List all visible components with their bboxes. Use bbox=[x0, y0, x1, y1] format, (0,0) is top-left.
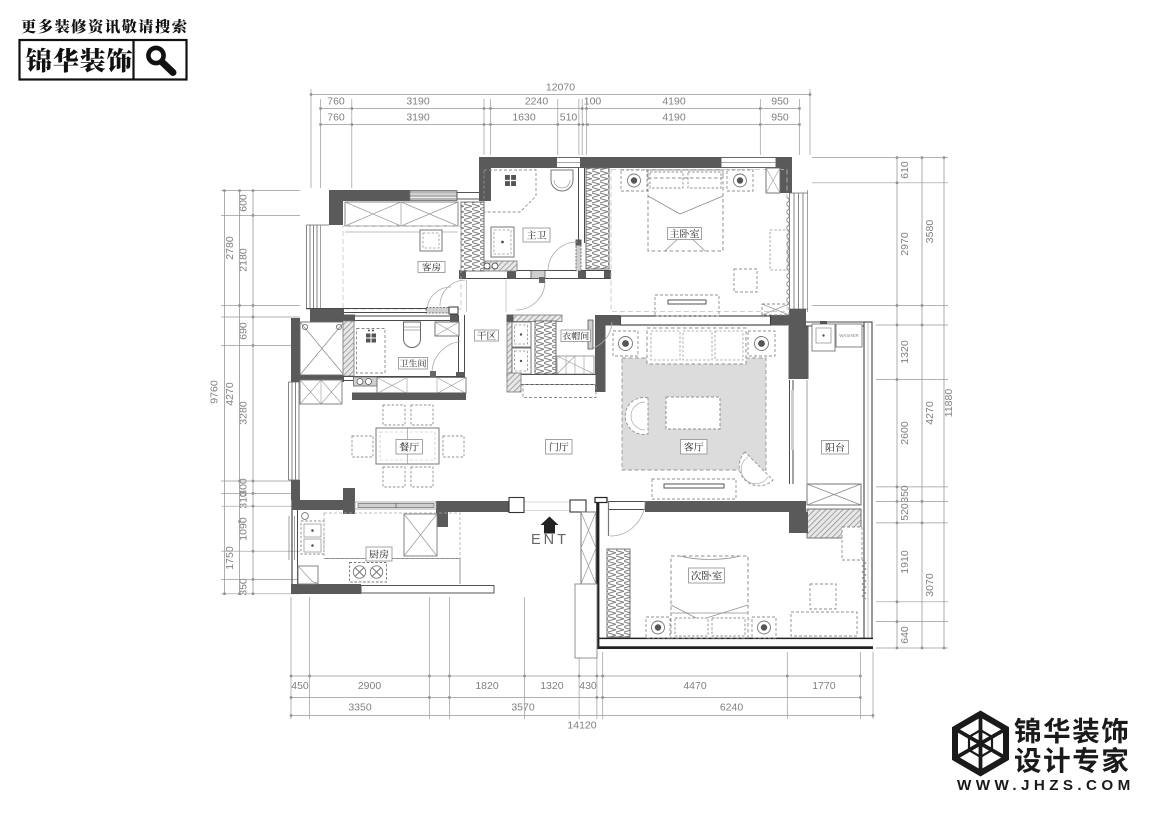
svg-text:430: 430 bbox=[579, 680, 597, 692]
svg-text:3350: 3350 bbox=[348, 702, 372, 714]
svg-text:11880: 11880 bbox=[943, 389, 955, 418]
svg-text:9760: 9760 bbox=[209, 380, 221, 404]
svg-text:4190: 4190 bbox=[662, 112, 686, 124]
svg-text:3570: 3570 bbox=[511, 702, 535, 714]
svg-text:640: 640 bbox=[899, 626, 911, 644]
svg-text:1820: 1820 bbox=[475, 680, 499, 692]
svg-text:14120: 14120 bbox=[567, 720, 596, 732]
svg-text:520: 520 bbox=[899, 503, 911, 521]
svg-text:2780: 2780 bbox=[224, 236, 236, 260]
svg-text:6240: 6240 bbox=[720, 702, 744, 714]
svg-text:450: 450 bbox=[291, 680, 309, 692]
svg-text:1770: 1770 bbox=[812, 680, 836, 692]
svg-text:4190: 4190 bbox=[662, 96, 686, 108]
svg-text:760: 760 bbox=[327, 96, 345, 108]
svg-text:1320: 1320 bbox=[899, 340, 911, 364]
svg-text:760: 760 bbox=[327, 112, 345, 124]
svg-text:1910: 1910 bbox=[899, 550, 911, 574]
svg-text:3580: 3580 bbox=[924, 220, 936, 244]
svg-text:WASHER: WASHER bbox=[839, 333, 859, 338]
svg-text:3190: 3190 bbox=[406, 96, 430, 108]
svg-text:2600: 2600 bbox=[899, 421, 911, 445]
svg-text:610: 610 bbox=[899, 161, 911, 179]
svg-text:3190: 3190 bbox=[406, 112, 430, 124]
svg-text:4270: 4270 bbox=[924, 401, 936, 425]
svg-text:350: 350 bbox=[899, 485, 911, 503]
svg-text:4470: 4470 bbox=[683, 680, 707, 692]
svg-text:2900: 2900 bbox=[358, 680, 382, 692]
svg-text:12070: 12070 bbox=[546, 82, 575, 94]
svg-text:3070: 3070 bbox=[924, 573, 936, 597]
svg-text:950: 950 bbox=[771, 96, 789, 108]
svg-text:2240: 2240 bbox=[525, 96, 549, 108]
svg-text:1750: 1750 bbox=[224, 546, 236, 570]
svg-text:2970: 2970 bbox=[899, 232, 911, 256]
svg-text:1630: 1630 bbox=[512, 112, 536, 124]
svg-text:WWW.JHZS.COM: WWW.JHZS.COM bbox=[957, 777, 1135, 794]
svg-text:950: 950 bbox=[771, 112, 789, 124]
svg-text:1320: 1320 bbox=[540, 680, 564, 692]
svg-text:4270: 4270 bbox=[224, 382, 236, 406]
svg-text:ENT: ENT bbox=[531, 532, 569, 548]
svg-text:510: 510 bbox=[560, 112, 578, 124]
